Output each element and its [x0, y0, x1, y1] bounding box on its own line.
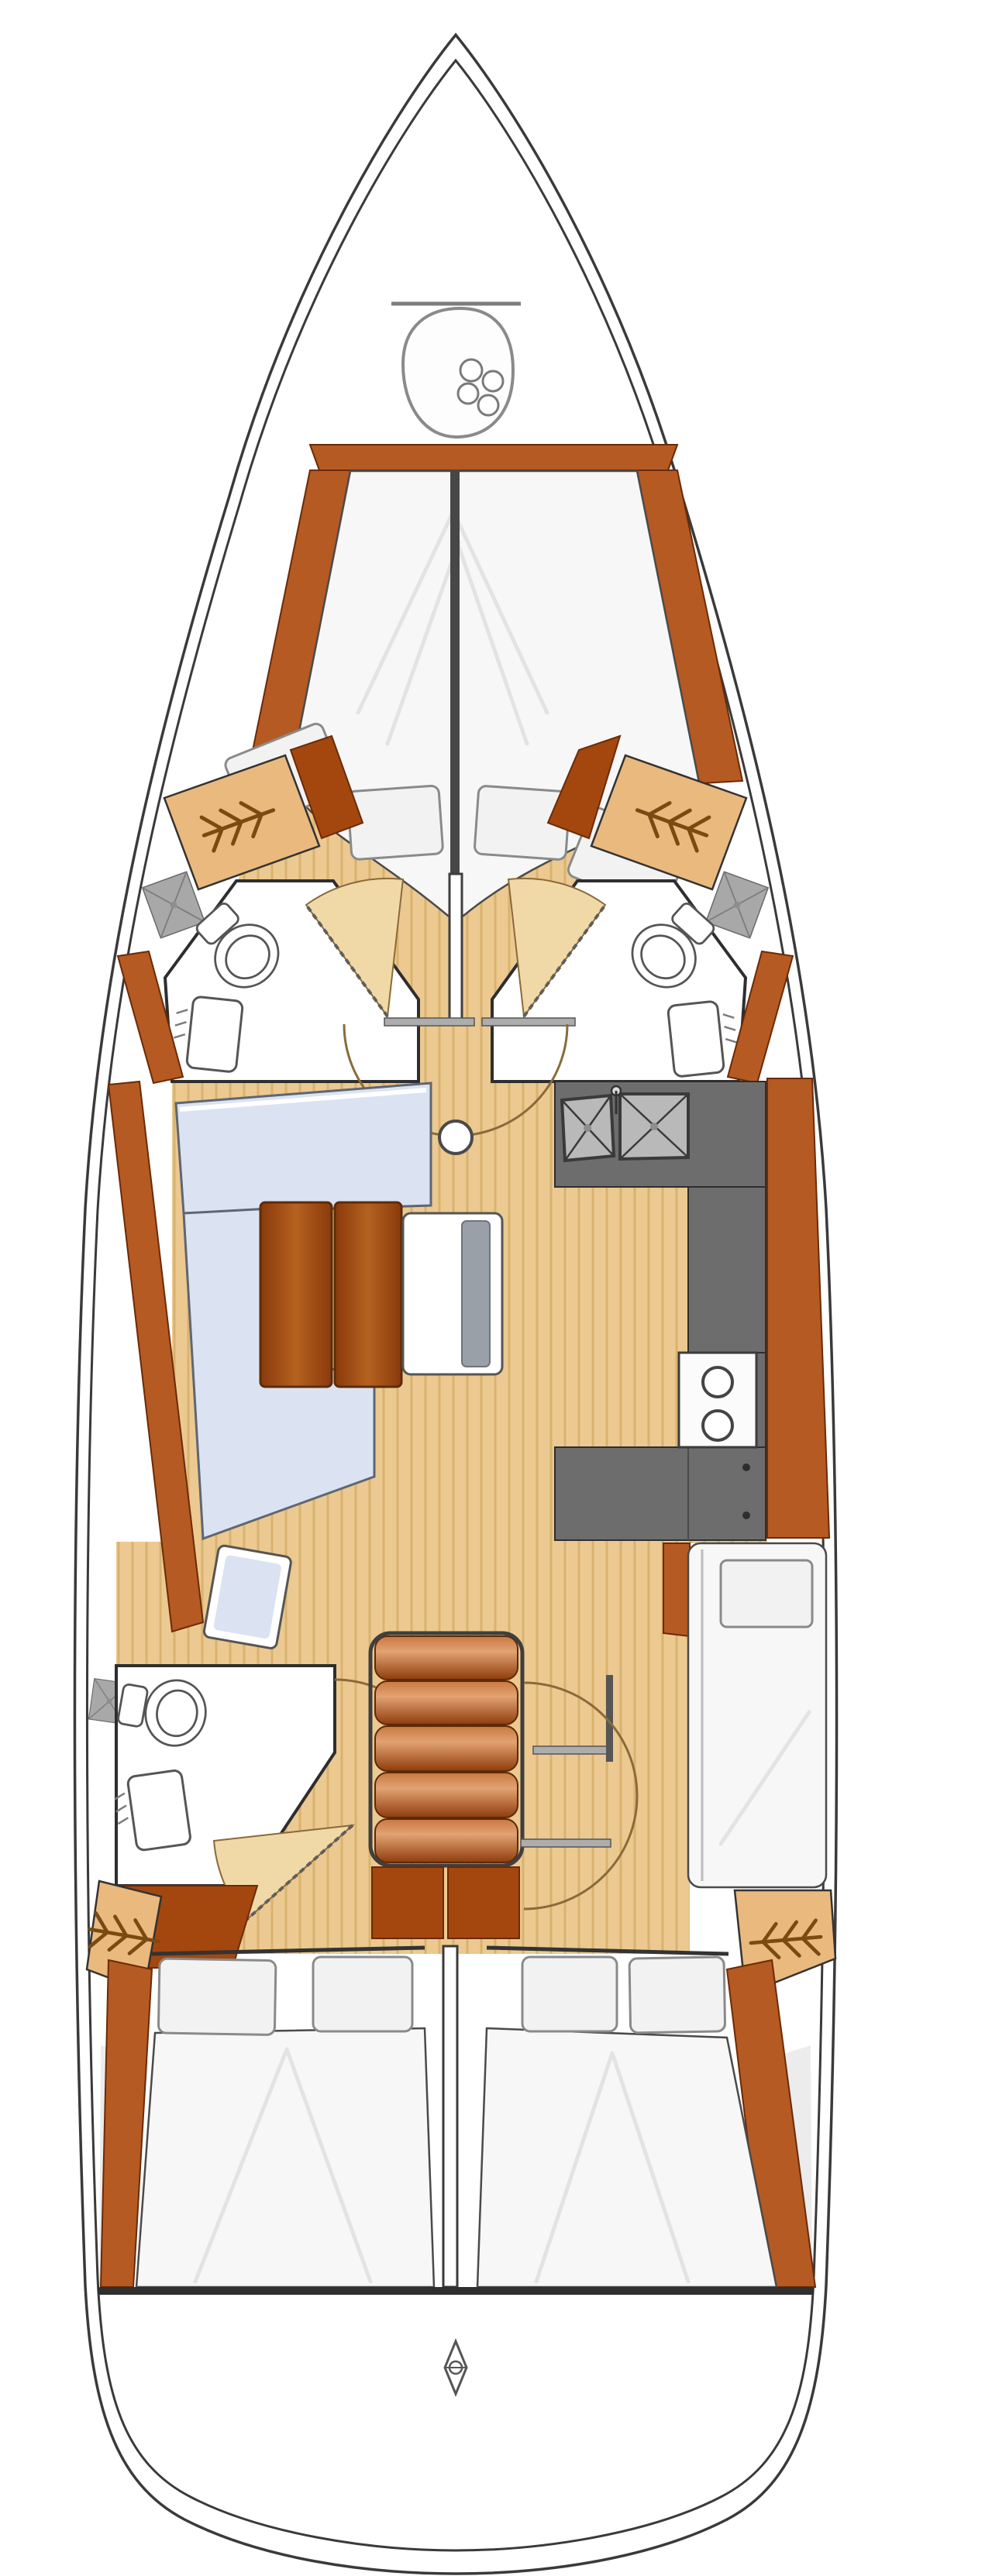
- nav-wood-trim: [663, 1543, 690, 1636]
- vberth-center-divider: [450, 469, 460, 916]
- aft-berth-port: [136, 2028, 434, 2287]
- aft-berth-starboard: [477, 2028, 777, 2287]
- boat-floorplan: [0, 0, 992, 2576]
- transom-line: [98, 2287, 814, 2295]
- stove: [679, 1353, 756, 1447]
- galley-counter-sliver: [756, 1353, 766, 1447]
- nav-berth: [663, 1543, 826, 1887]
- settee-stool: [203, 1545, 291, 1649]
- settee-top-bench: [176, 1083, 431, 1213]
- galley-sink-icon: [562, 1095, 614, 1161]
- vberth-header-board: [310, 445, 677, 470]
- step: [375, 1819, 518, 1862]
- stove-burner-icon: [703, 1367, 732, 1397]
- stair-plank: [372, 1867, 443, 1938]
- aft-center-divider: [443, 1946, 457, 2287]
- galley-counter-aft: [555, 1447, 766, 1540]
- step: [375, 1726, 518, 1771]
- centerline-post: [449, 874, 462, 1023]
- galley-counter-side: [688, 1187, 766, 1353]
- bulkhead-bar: [533, 1746, 611, 1754]
- floorplan-svg: [0, 0, 992, 2576]
- step: [375, 1773, 518, 1818]
- stair-plank: [448, 1867, 519, 1938]
- stove-burner-icon: [703, 1411, 732, 1440]
- bulkhead-bar: [482, 1018, 575, 1026]
- galley-sink-icon: [620, 1094, 688, 1159]
- bulkhead-bar: [384, 1018, 474, 1026]
- step: [375, 1636, 518, 1680]
- step: [375, 1681, 518, 1725]
- bulkhead-bar: [521, 1839, 611, 1847]
- saloon-bench-seat: [403, 1213, 502, 1374]
- mast-icon: [439, 1121, 472, 1154]
- saloon-table: [260, 1202, 401, 1387]
- nav-berth-pillow: [721, 1560, 812, 1627]
